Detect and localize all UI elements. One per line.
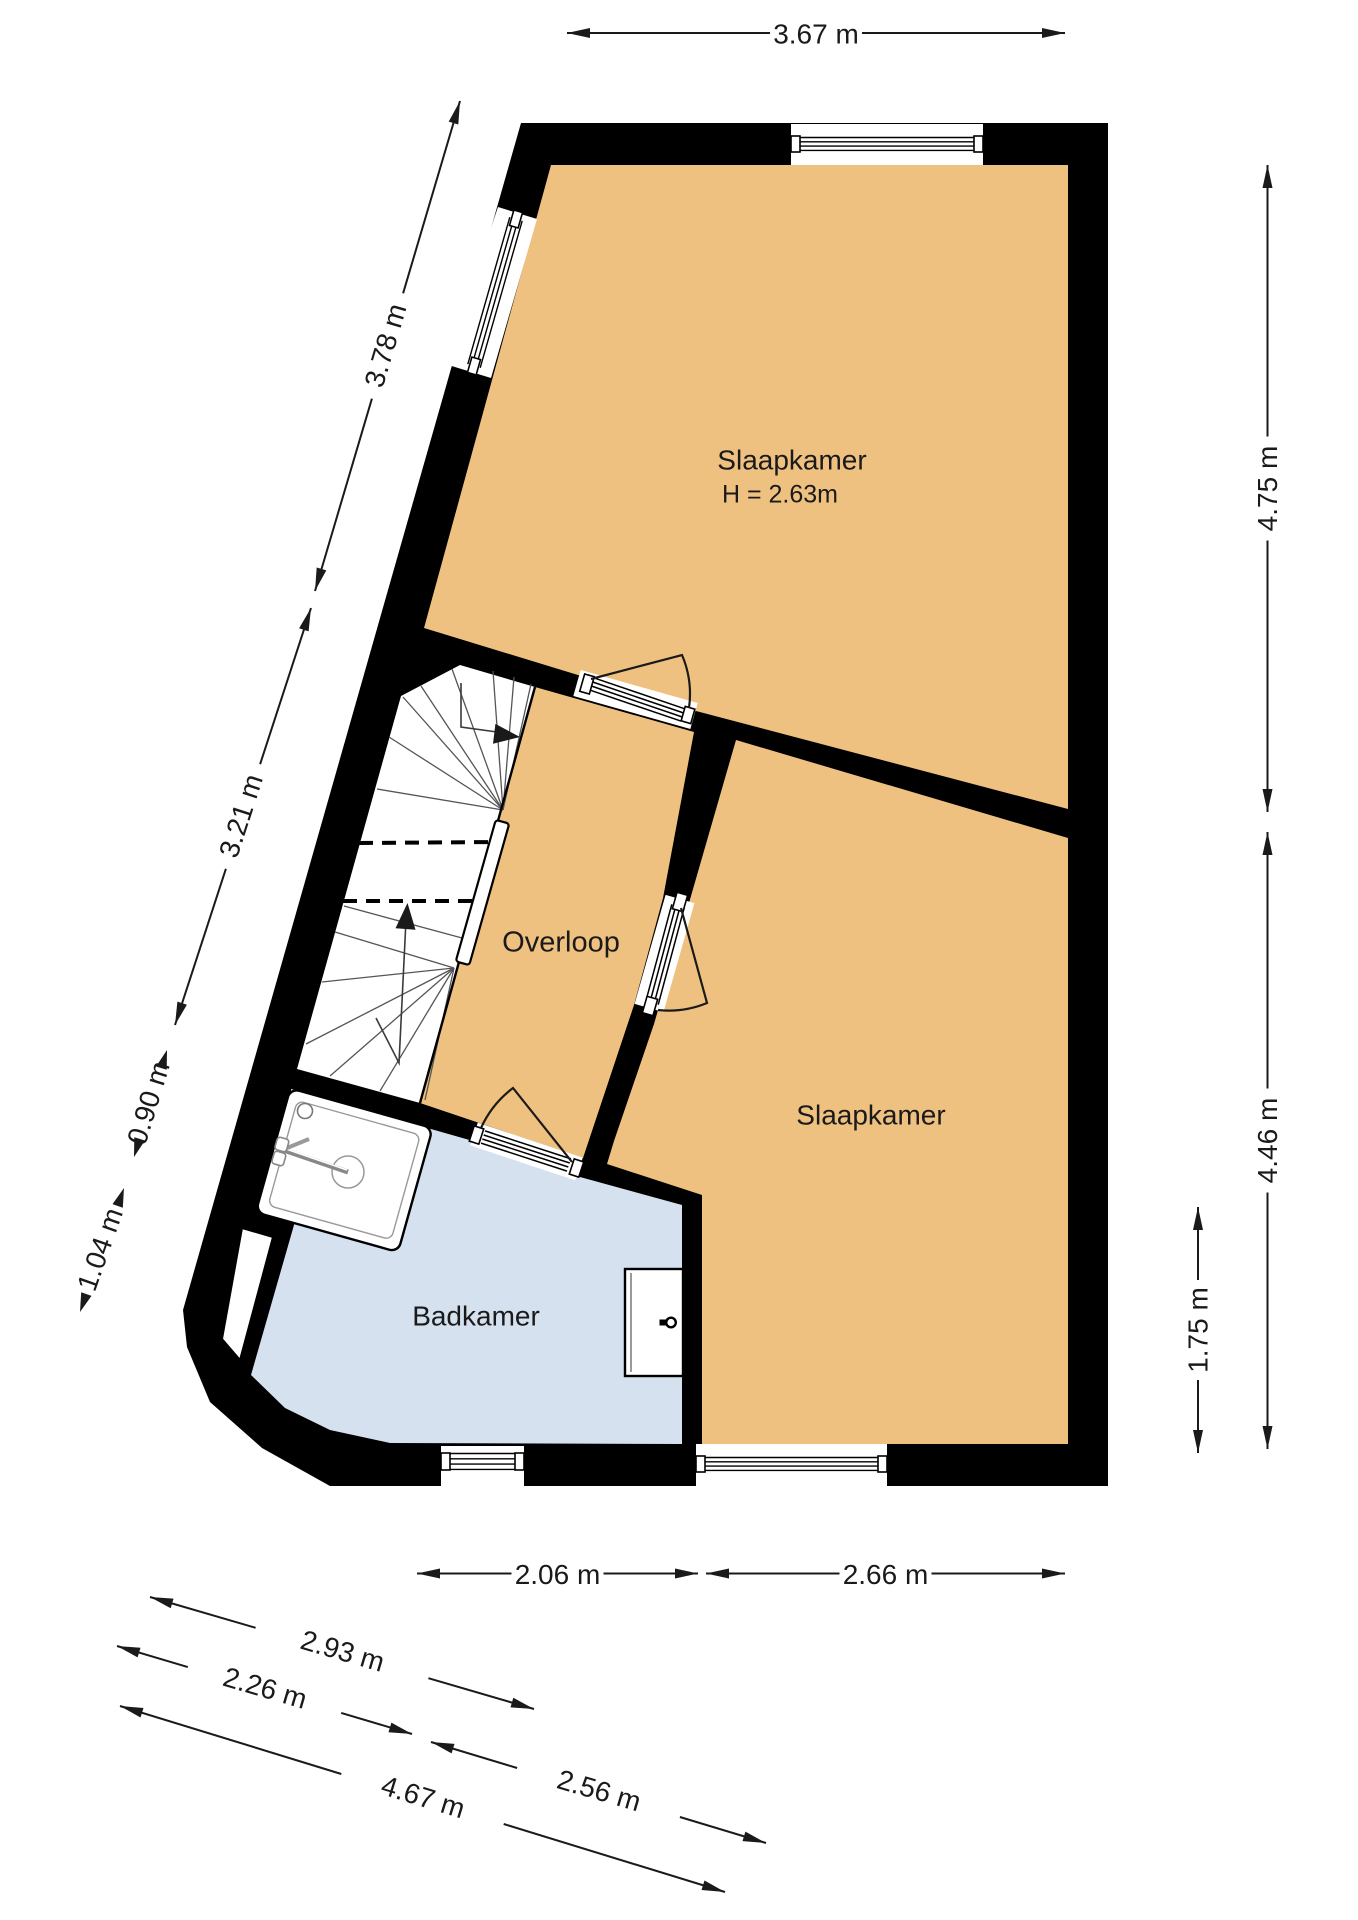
- svg-text:Badkamer: Badkamer: [412, 1300, 540, 1331]
- svg-text:H = 2.63m: H = 2.63m: [722, 481, 838, 509]
- svg-text:Slaapkamer: Slaapkamer: [796, 1099, 945, 1130]
- svg-text:Slaapkamer: Slaapkamer: [717, 444, 866, 475]
- svg-text:2.06 m: 2.06 m: [515, 1559, 601, 1590]
- svg-text:4.75 m: 4.75 m: [1252, 446, 1283, 532]
- svg-text:1.75 m: 1.75 m: [1182, 1287, 1213, 1373]
- svg-text:3.67 m: 3.67 m: [773, 18, 859, 49]
- svg-text:Overloop: Overloop: [502, 927, 620, 959]
- svg-text:2.66 m: 2.66 m: [843, 1559, 929, 1590]
- svg-text:4.46 m: 4.46 m: [1252, 1098, 1283, 1184]
